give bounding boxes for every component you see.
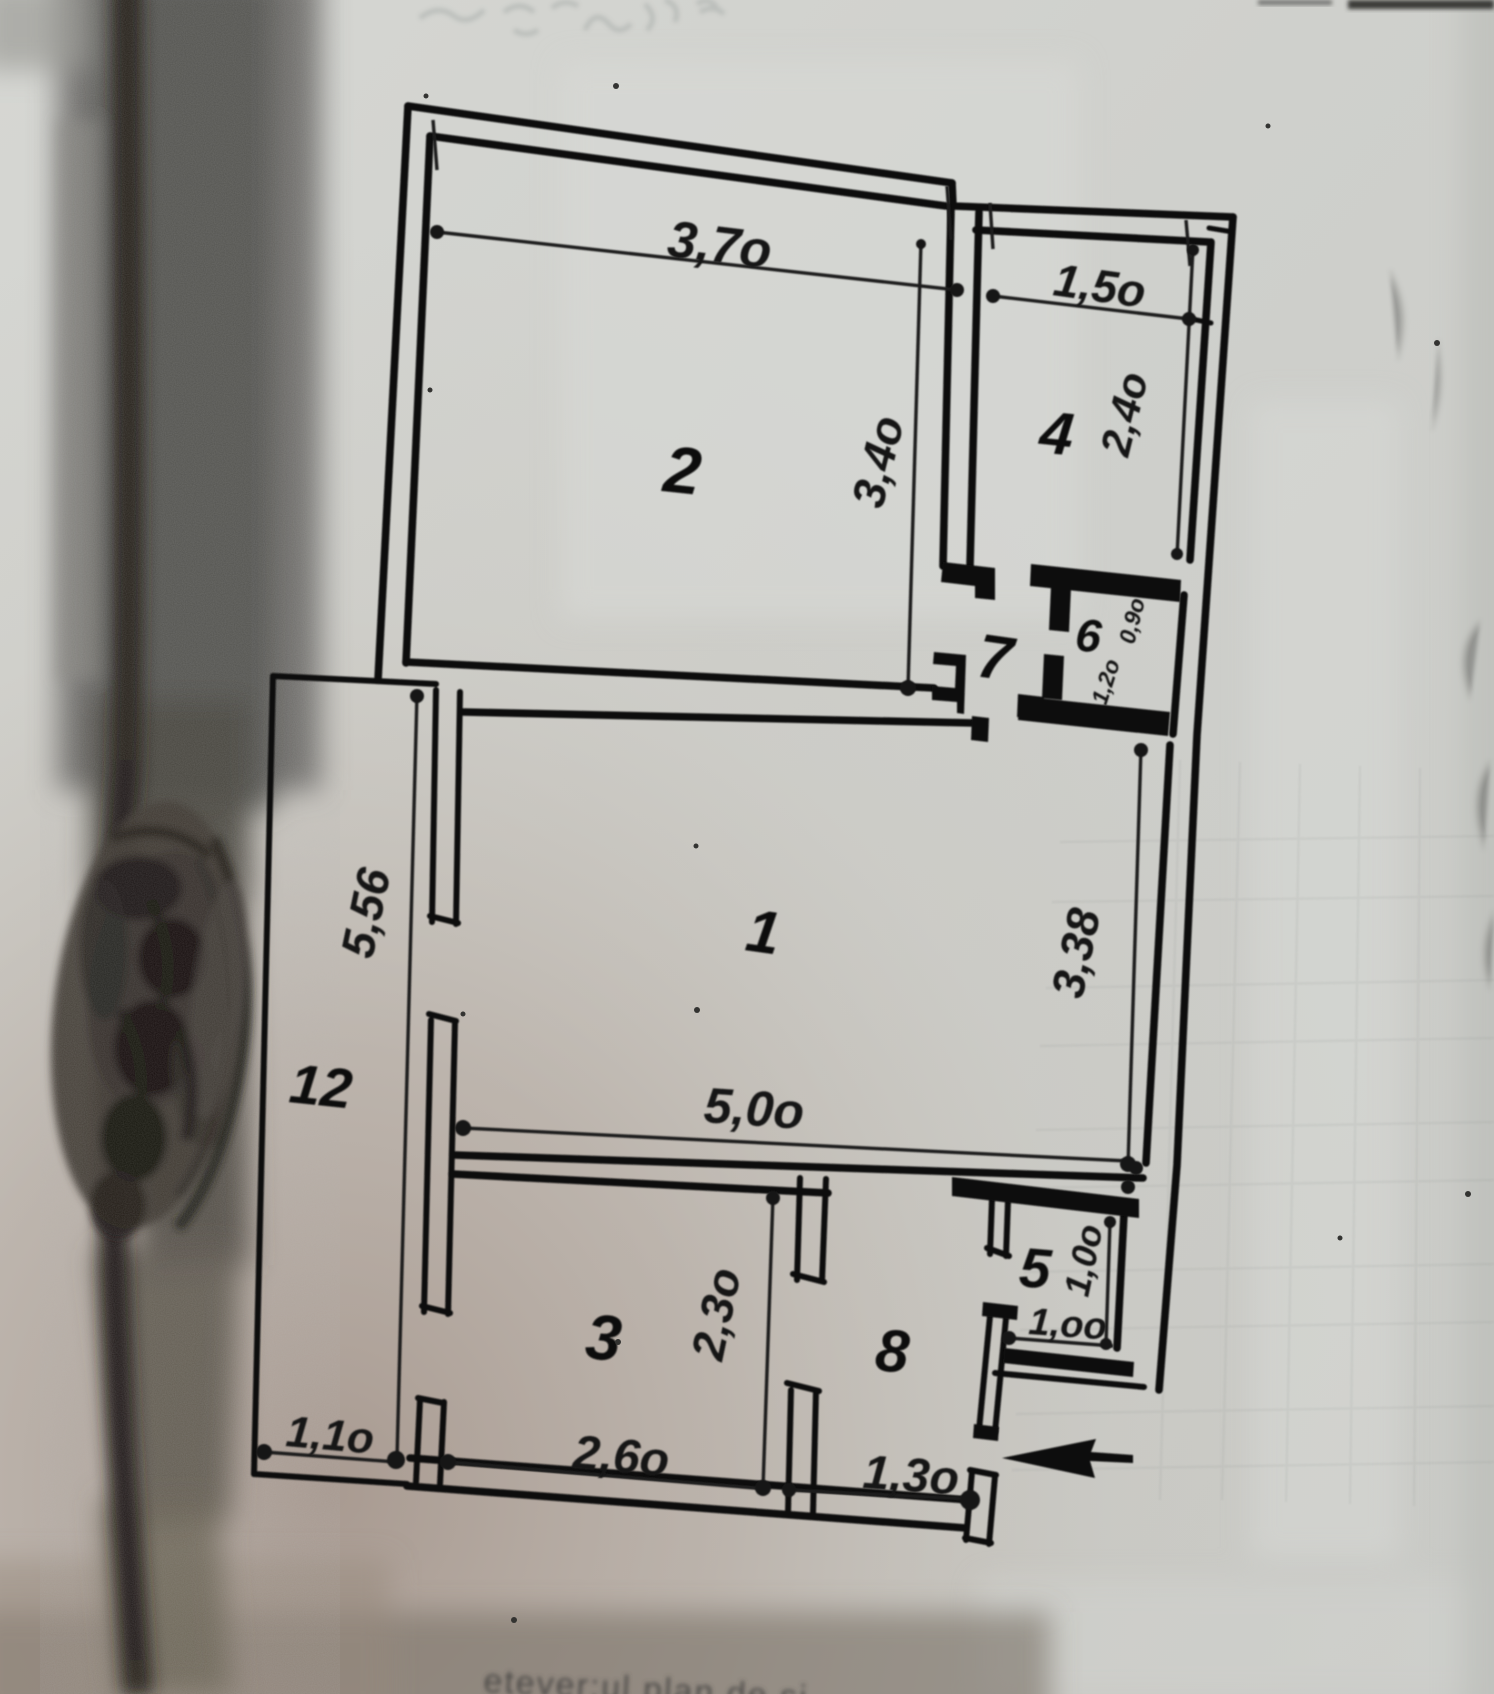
- svg-text:12: 12: [287, 1051, 356, 1120]
- svg-text:1,oo: 1,oo: [1027, 1301, 1108, 1348]
- svg-text:2,6o: 2,6o: [570, 1426, 671, 1487]
- svg-text:5: 5: [1017, 1235, 1054, 1301]
- svg-text:3: 3: [583, 1300, 625, 1375]
- svg-text:5,0o: 5,0o: [702, 1077, 806, 1140]
- svg-text:1,1o: 1,1o: [284, 1407, 376, 1463]
- svg-text:4: 4: [1036, 398, 1077, 468]
- svg-text:1,3o: 1,3o: [861, 1446, 961, 1506]
- svg-text:8: 8: [873, 1316, 913, 1386]
